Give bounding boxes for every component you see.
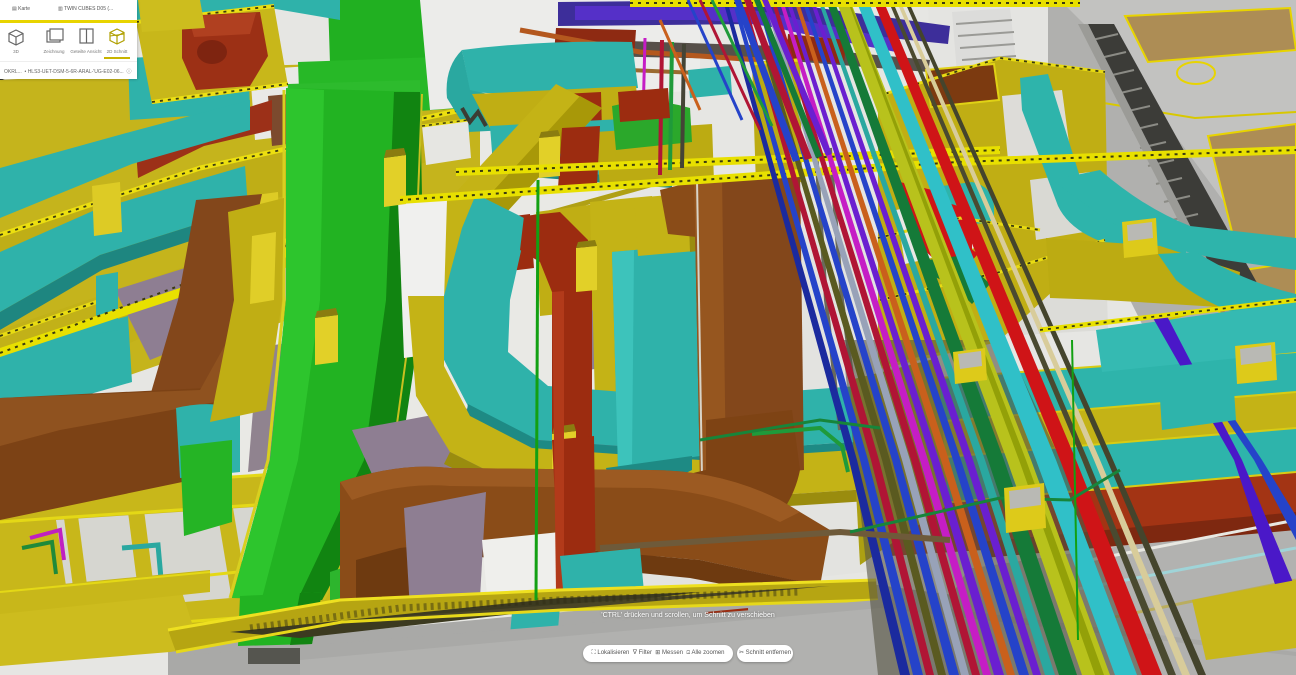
- svg-text:2D Schnitt: 2D Schnitt: [107, 49, 129, 54]
- svg-text:Geteilte Ansicht: Geteilte Ansicht: [70, 49, 102, 54]
- svg-text:Zeichnung: Zeichnung: [43, 49, 65, 54]
- svg-text:3D: 3D: [13, 49, 20, 54]
